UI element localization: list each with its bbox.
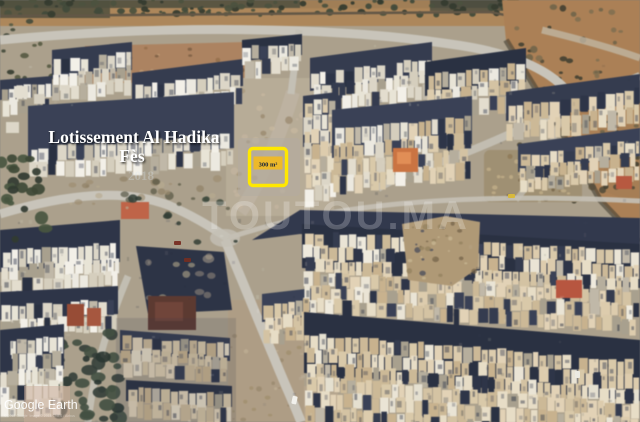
svg-text:2018: 2018: [128, 168, 155, 183]
svg-text:Lotissement Al Hadika: Lotissement Al Hadika: [48, 127, 219, 147]
svg-text:TOUTOU.MA: TOUTOU.MA: [202, 194, 470, 238]
svg-text:300 m²: 300 m²: [259, 162, 278, 169]
svg-text:Fès: Fès: [119, 146, 144, 166]
svg-text:© 2018 Google Image © 2018 CN: © 2018 Google Image © 2018 CNES / Airbus: [4, 414, 75, 418]
svg-text:Google Earth: Google Earth: [4, 398, 78, 412]
